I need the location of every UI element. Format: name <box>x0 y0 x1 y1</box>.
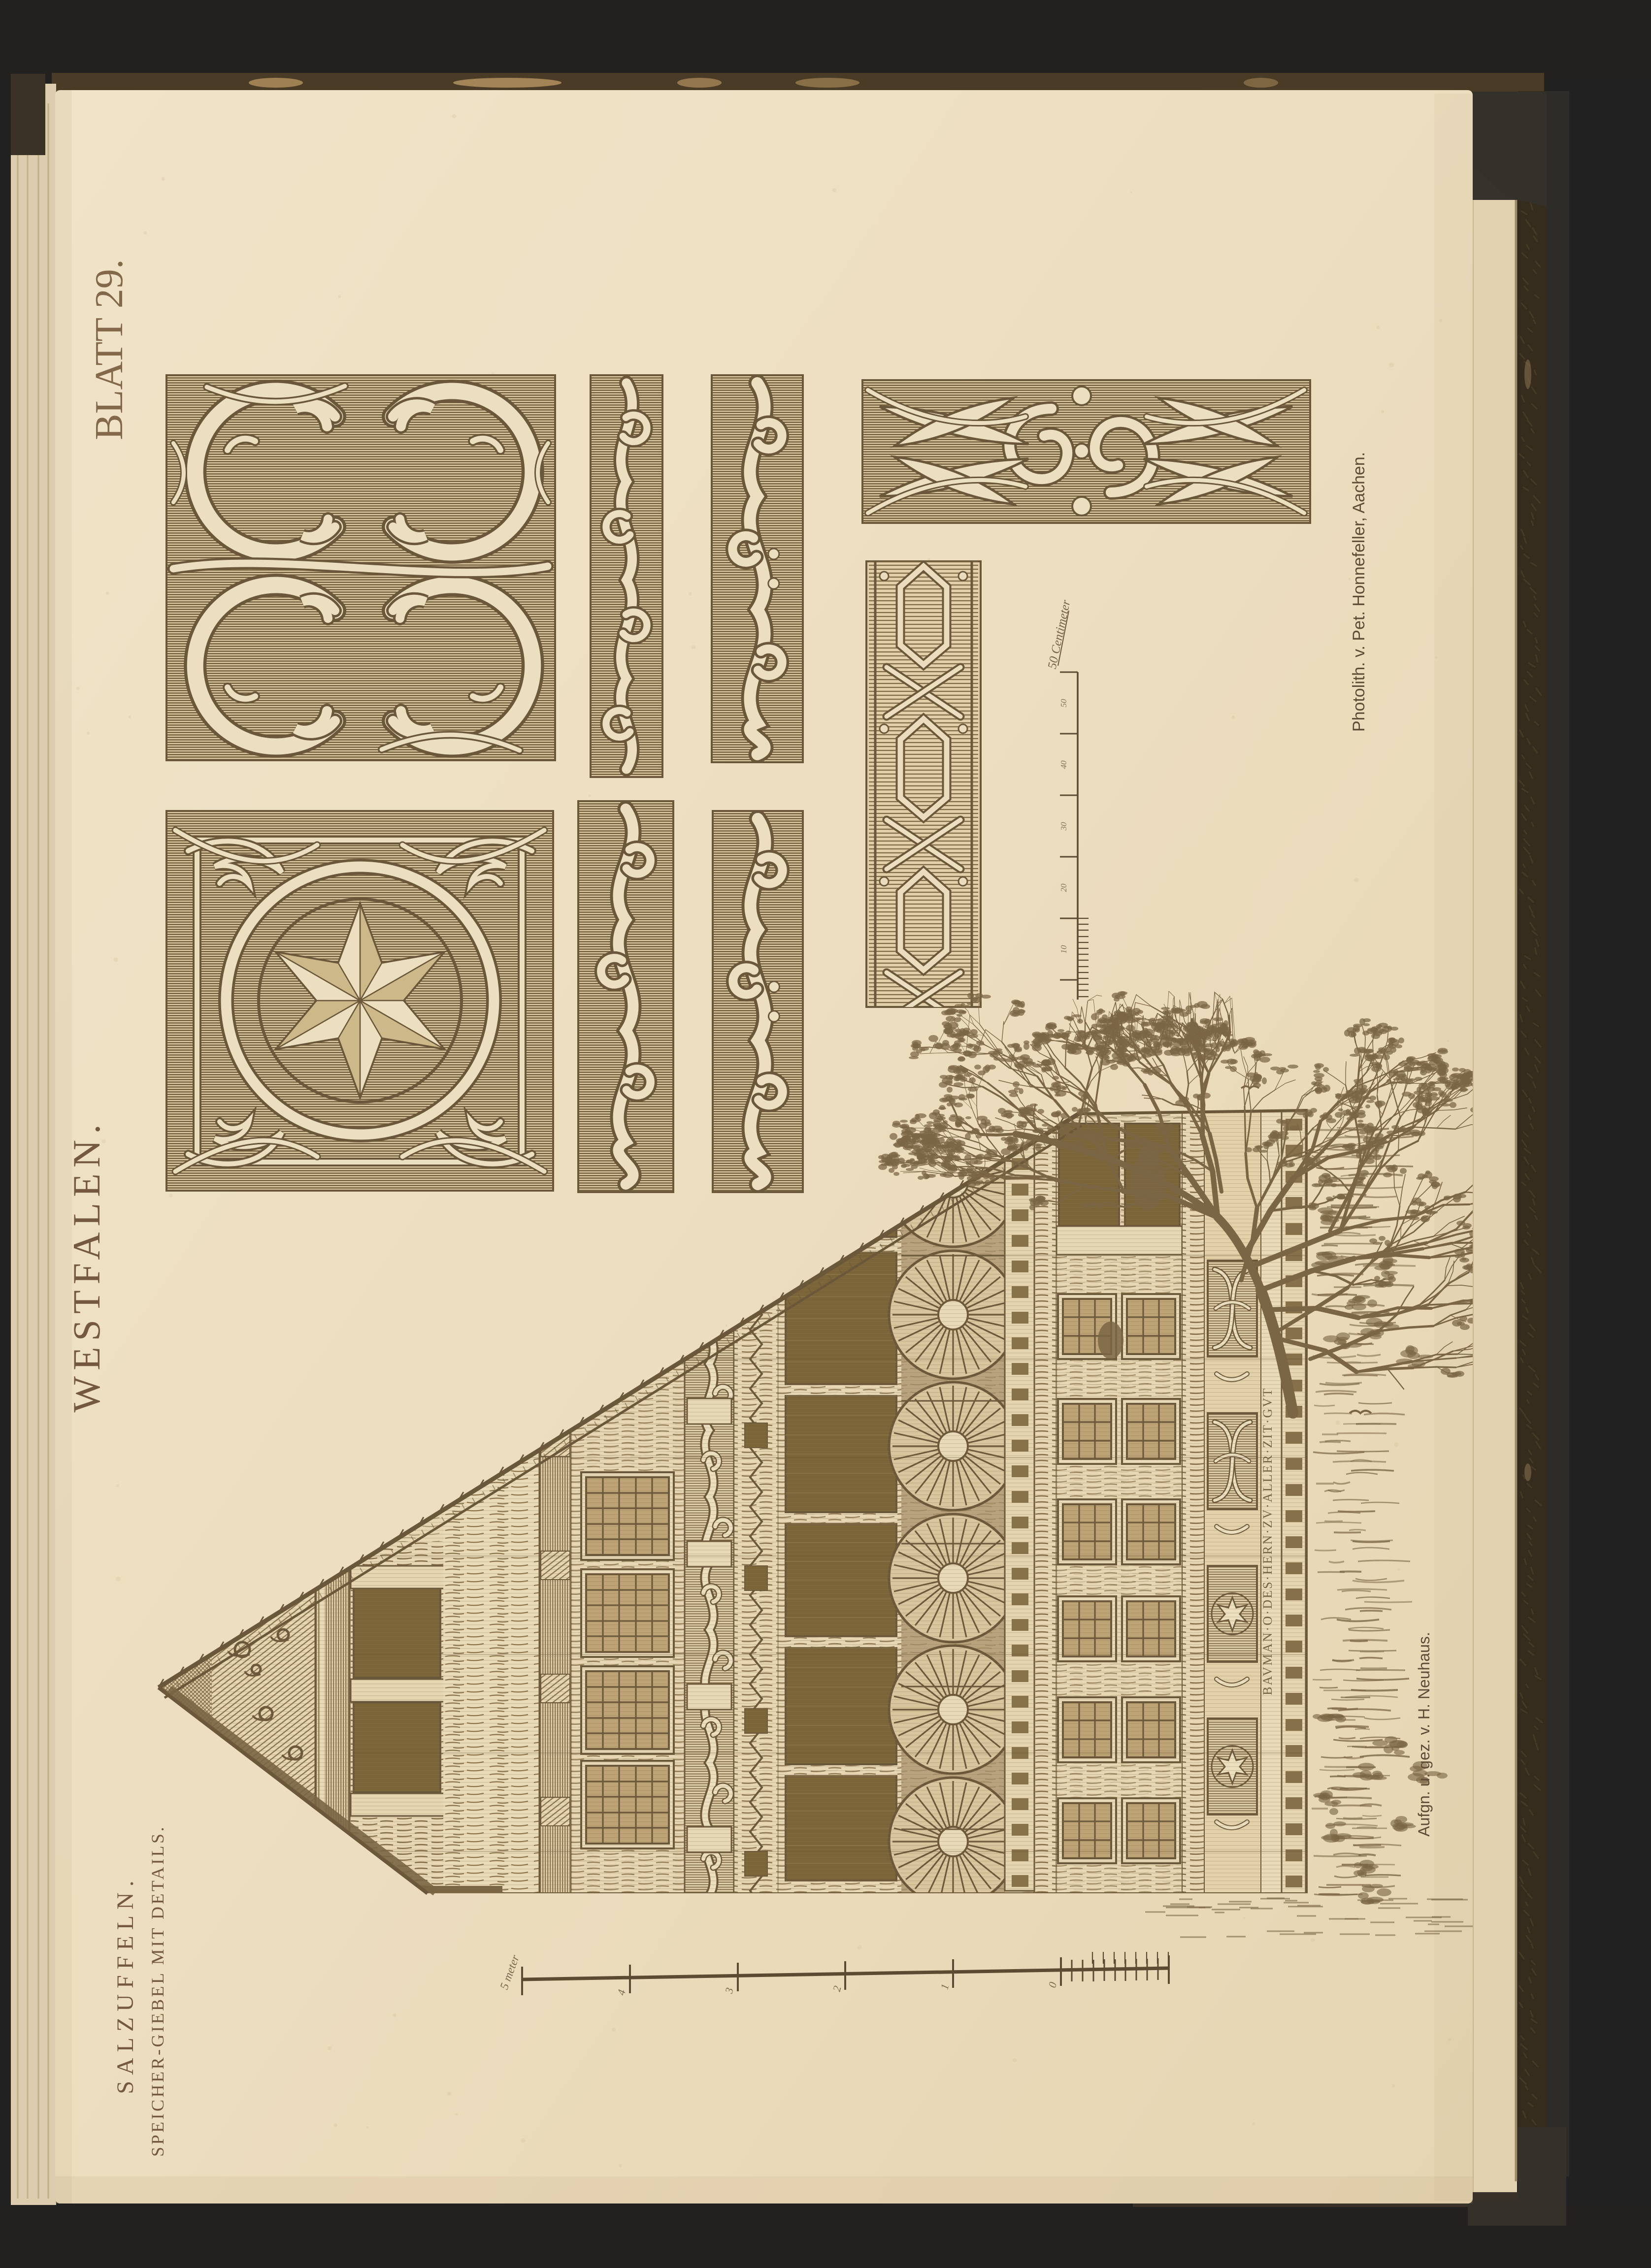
svg-text:20: 20 <box>1059 883 1068 892</box>
svg-text:SALZUFFELN.: SALZUFFELN. <box>112 1875 138 2094</box>
svg-text:50: 50 <box>1059 699 1068 708</box>
svg-text:10: 10 <box>1059 945 1068 954</box>
svg-text:40: 40 <box>1059 760 1068 769</box>
svg-text:SPEICHER-GIEBEL MIT DETAILS.: SPEICHER-GIEBEL MIT DETAILS. <box>148 1825 167 2157</box>
svg-text:Photolith. v. Pet. Honnefeller: Photolith. v. Pet. Honnefeller, Aachen. <box>1350 452 1368 732</box>
svg-text:Aufgn. u. gez. v. H. Neuhaus.: Aufgn. u. gez. v. H. Neuhaus. <box>1415 1632 1433 1837</box>
svg-text:WESTFALEN.: WESTFALEN. <box>65 1118 108 1412</box>
svg-text:30: 30 <box>1059 822 1068 831</box>
svg-text:BLATT 29.: BLATT 29. <box>88 259 131 440</box>
